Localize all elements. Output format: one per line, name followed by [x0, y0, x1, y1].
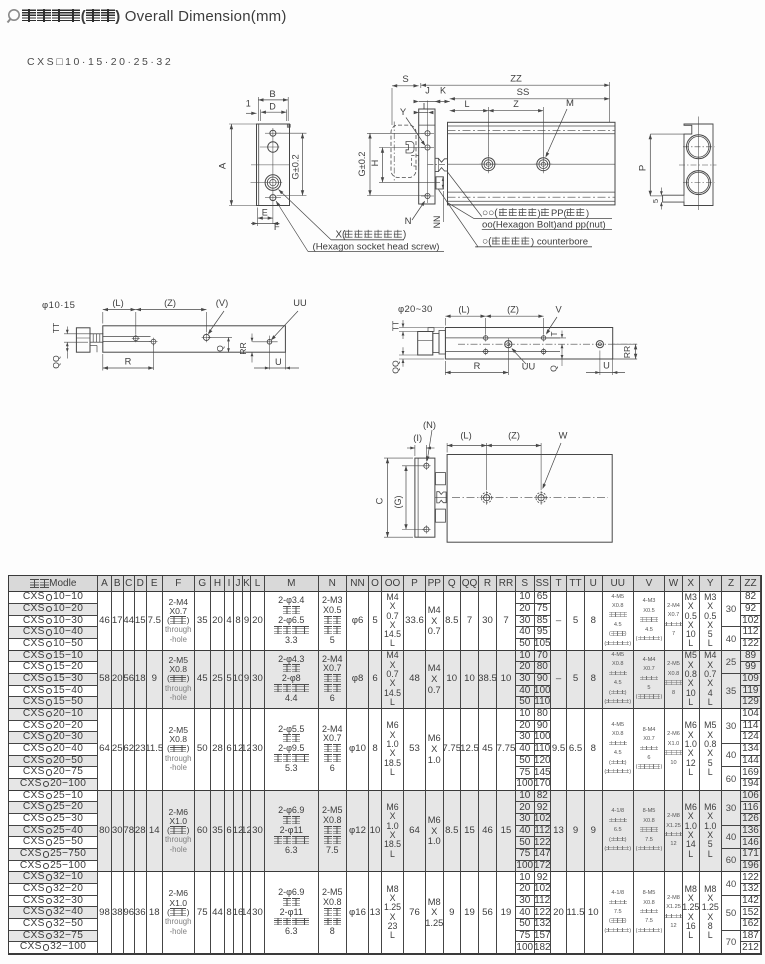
svg-text:QQ: QQ: [391, 360, 401, 374]
svg-text:A: A: [218, 162, 229, 169]
svg-text:) counterbore: ) counterbore: [531, 237, 588, 248]
svg-text:H: H: [370, 160, 380, 167]
svg-text:D: D: [269, 102, 276, 112]
svg-text:UU: UU: [293, 298, 306, 308]
svg-text:(Z): (Z): [507, 304, 519, 314]
svg-text:G±0.2: G±0.2: [290, 154, 300, 179]
svg-text:φ10·15: φ10·15: [42, 300, 75, 311]
svg-text:U: U: [275, 357, 282, 367]
svg-text:Q: Q: [549, 365, 559, 372]
svg-text:(G): (G): [393, 496, 403, 509]
svg-text:5: 5: [651, 199, 660, 203]
svg-text:Y: Y: [400, 107, 407, 118]
svg-text:F: F: [274, 222, 280, 233]
svg-text:C: C: [375, 497, 385, 504]
svg-text:TT: TT: [51, 322, 61, 333]
svg-text:M: M: [566, 98, 574, 109]
svg-text:Z: Z: [513, 99, 519, 109]
svg-text:(V): (V): [216, 298, 228, 308]
svg-text:S: S: [402, 74, 408, 85]
svg-text:RR: RR: [238, 342, 248, 354]
svg-text:○(: ○(: [482, 237, 492, 248]
svg-text:): ): [586, 207, 589, 218]
svg-text:PP(: PP(: [551, 207, 568, 218]
svg-text:V: V: [555, 304, 562, 314]
svg-text:L: L: [464, 99, 469, 109]
svg-text:I: I: [423, 102, 426, 112]
svg-text:(L): (L): [112, 298, 123, 308]
svg-text:(Z): (Z): [164, 298, 176, 308]
svg-text:K: K: [440, 86, 446, 96]
svg-text:Q: Q: [215, 345, 225, 352]
svg-text:): ): [538, 207, 541, 218]
svg-text:1: 1: [246, 99, 251, 109]
svg-text:SS: SS: [517, 87, 530, 98]
svg-text:(L): (L): [460, 431, 471, 441]
svg-text:NN: NN: [432, 216, 442, 229]
svg-text:X(: X(: [336, 230, 347, 241]
svg-text:(N): (N): [423, 420, 436, 430]
svg-text:R: R: [125, 357, 132, 367]
svg-text:RR: RR: [622, 346, 632, 358]
svg-text:○○(: ○○(: [482, 208, 498, 219]
svg-text:B: B: [269, 89, 275, 100]
svg-text:T: T: [550, 331, 559, 336]
svg-text:ZZ: ZZ: [510, 74, 522, 85]
svg-text:φ20~30: φ20~30: [398, 304, 433, 315]
svg-text:TT: TT: [391, 320, 401, 331]
svg-text:(Z): (Z): [508, 431, 520, 441]
svg-text:): ): [403, 230, 406, 241]
svg-text:G±0.2: G±0.2: [357, 152, 367, 177]
svg-text:QQ: QQ: [51, 355, 61, 369]
svg-text:(L): (L): [458, 304, 469, 314]
svg-text:R: R: [474, 361, 481, 371]
svg-text:UU: UU: [522, 362, 535, 372]
svg-text:E: E: [262, 208, 268, 218]
svg-text:(Hexagon socket head screw): (Hexagon socket head screw): [313, 241, 440, 252]
svg-text:N: N: [405, 216, 412, 227]
svg-text:(I): (I): [413, 433, 422, 443]
svg-text:J: J: [425, 86, 430, 96]
svg-text:U: U: [603, 361, 610, 371]
svg-text:oo(Hexagon Bolt)and pp(nut): oo(Hexagon Bolt)and pp(nut): [482, 219, 606, 230]
svg-text:P: P: [638, 165, 649, 171]
svg-text:W: W: [559, 431, 568, 441]
